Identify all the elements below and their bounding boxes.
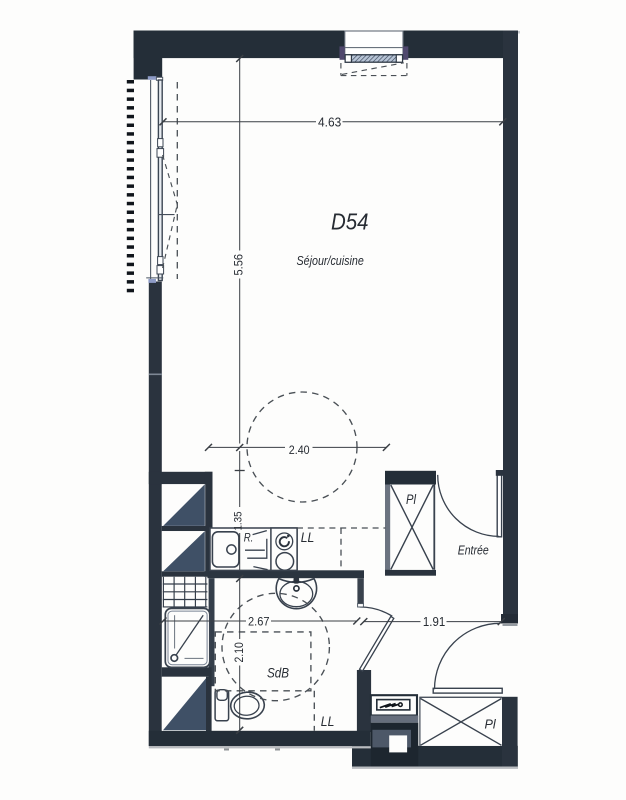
svg-text:2.40: 2.40 bbox=[289, 443, 310, 457]
svg-text:R.: R. bbox=[244, 531, 254, 545]
svg-text:SdB: SdB bbox=[267, 665, 289, 680]
svg-text:LL: LL bbox=[321, 714, 335, 729]
svg-text:1.35: 1.35 bbox=[233, 512, 245, 531]
svg-text:2.10: 2.10 bbox=[232, 642, 246, 662]
svg-text:LL: LL bbox=[301, 529, 315, 545]
svg-text:Pl: Pl bbox=[406, 492, 417, 508]
svg-text:D54: D54 bbox=[331, 209, 369, 235]
svg-text:5.56: 5.56 bbox=[232, 254, 246, 276]
svg-text:2.67: 2.67 bbox=[248, 614, 270, 628]
svg-text:Séjour/cuisine: Séjour/cuisine bbox=[297, 253, 364, 268]
svg-text:Entrée: Entrée bbox=[458, 543, 489, 558]
svg-text:Pl: Pl bbox=[485, 716, 497, 731]
svg-text:4.63: 4.63 bbox=[318, 116, 341, 130]
svg-text:1.91: 1.91 bbox=[423, 615, 445, 629]
